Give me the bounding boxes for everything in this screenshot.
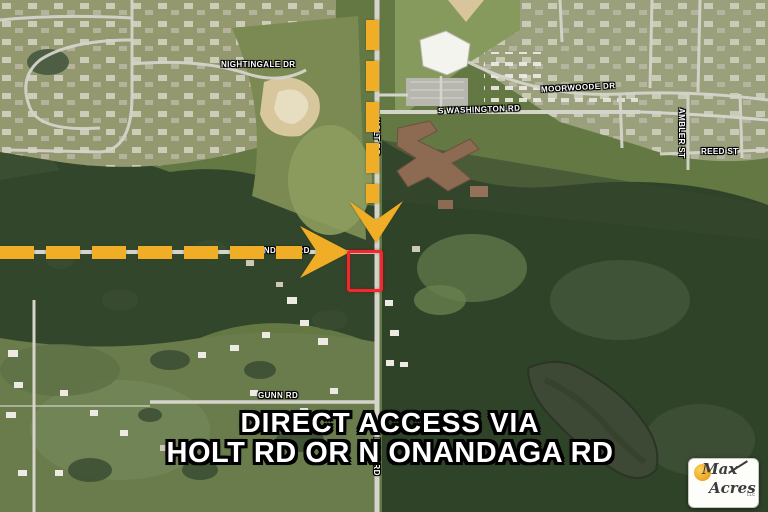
street-label-nightingale-dr: NIGHTINGALE DR xyxy=(221,60,296,69)
arrow-down-icon xyxy=(349,201,403,243)
route-dashes-horizontal xyxy=(0,246,302,259)
access-caption: DIRECT ACCESS VIA HOLT RD OR N ONANDAGA … xyxy=(167,408,614,468)
street-label-gunn-rd: GUNN RD xyxy=(258,391,298,400)
logo-suffix-llc: LLC xyxy=(747,492,755,497)
brand-logo-max-acres: Max Acres LLC xyxy=(688,458,759,508)
aerial-map: NIGHTINGALE DR S WASHINGTON RD MOORWOODE… xyxy=(0,0,768,512)
route-dashes-vertical xyxy=(366,20,379,203)
caption-line-1: DIRECT ACCESS VIA xyxy=(167,408,614,438)
street-label-reed-st: REED ST xyxy=(701,147,738,156)
caption-line-2: HOLT RD OR N ONANDAGA RD xyxy=(167,438,614,469)
arrow-right-icon xyxy=(300,226,350,278)
logo-word-max: Max xyxy=(702,460,737,478)
street-label-ambler-st: AMBLER ST xyxy=(677,108,686,158)
parcel-highlight-box xyxy=(347,250,383,292)
